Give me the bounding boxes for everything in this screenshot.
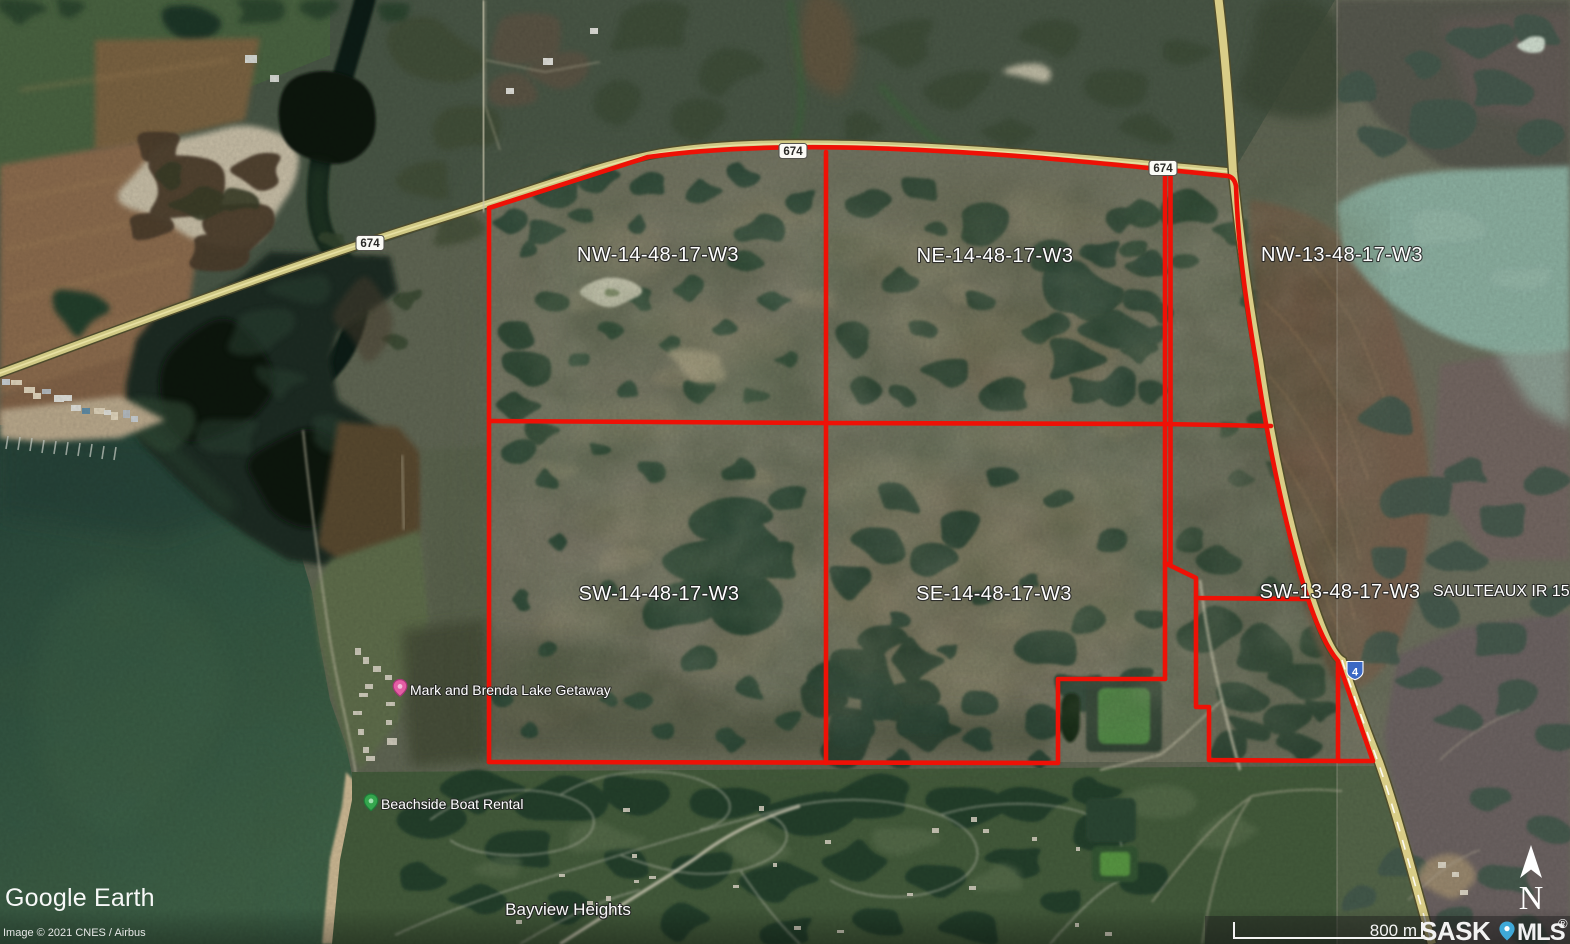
svg-text:Image © 2021 CNES / Airbus: Image © 2021 CNES / Airbus bbox=[3, 927, 146, 939]
svg-text:®: ® bbox=[1558, 916, 1568, 931]
svg-text:Google Earth: Google Earth bbox=[5, 884, 155, 912]
svg-text:4: 4 bbox=[1352, 667, 1359, 679]
svg-text:NE-14-48-17-W3: NE-14-48-17-W3 bbox=[917, 245, 1074, 267]
svg-text:800 m: 800 m bbox=[1370, 921, 1417, 940]
svg-text:SW-14-48-17-W3: SW-14-48-17-W3 bbox=[579, 583, 740, 605]
svg-text:674: 674 bbox=[783, 146, 803, 158]
svg-text:SE-14-48-17-W3: SE-14-48-17-W3 bbox=[916, 583, 1072, 605]
svg-text:N: N bbox=[1519, 880, 1544, 917]
svg-text:SW-13-48-17-W3: SW-13-48-17-W3 bbox=[1260, 581, 1421, 603]
svg-text:674: 674 bbox=[1153, 163, 1173, 175]
svg-text:NW-13-48-17-W3: NW-13-48-17-W3 bbox=[1261, 244, 1423, 266]
svg-text:SASK: SASK bbox=[1420, 916, 1491, 944]
svg-text:SAULTEAUX IR 15: SAULTEAUX IR 15 bbox=[1433, 583, 1570, 600]
svg-text:Mark and Brenda Lake Getaway: Mark and Brenda Lake Getaway bbox=[410, 682, 611, 698]
svg-text:Beachside Boat Rental: Beachside Boat Rental bbox=[381, 796, 523, 812]
svg-text:NW-14-48-17-W3: NW-14-48-17-W3 bbox=[577, 244, 739, 266]
svg-text:674: 674 bbox=[360, 238, 380, 250]
